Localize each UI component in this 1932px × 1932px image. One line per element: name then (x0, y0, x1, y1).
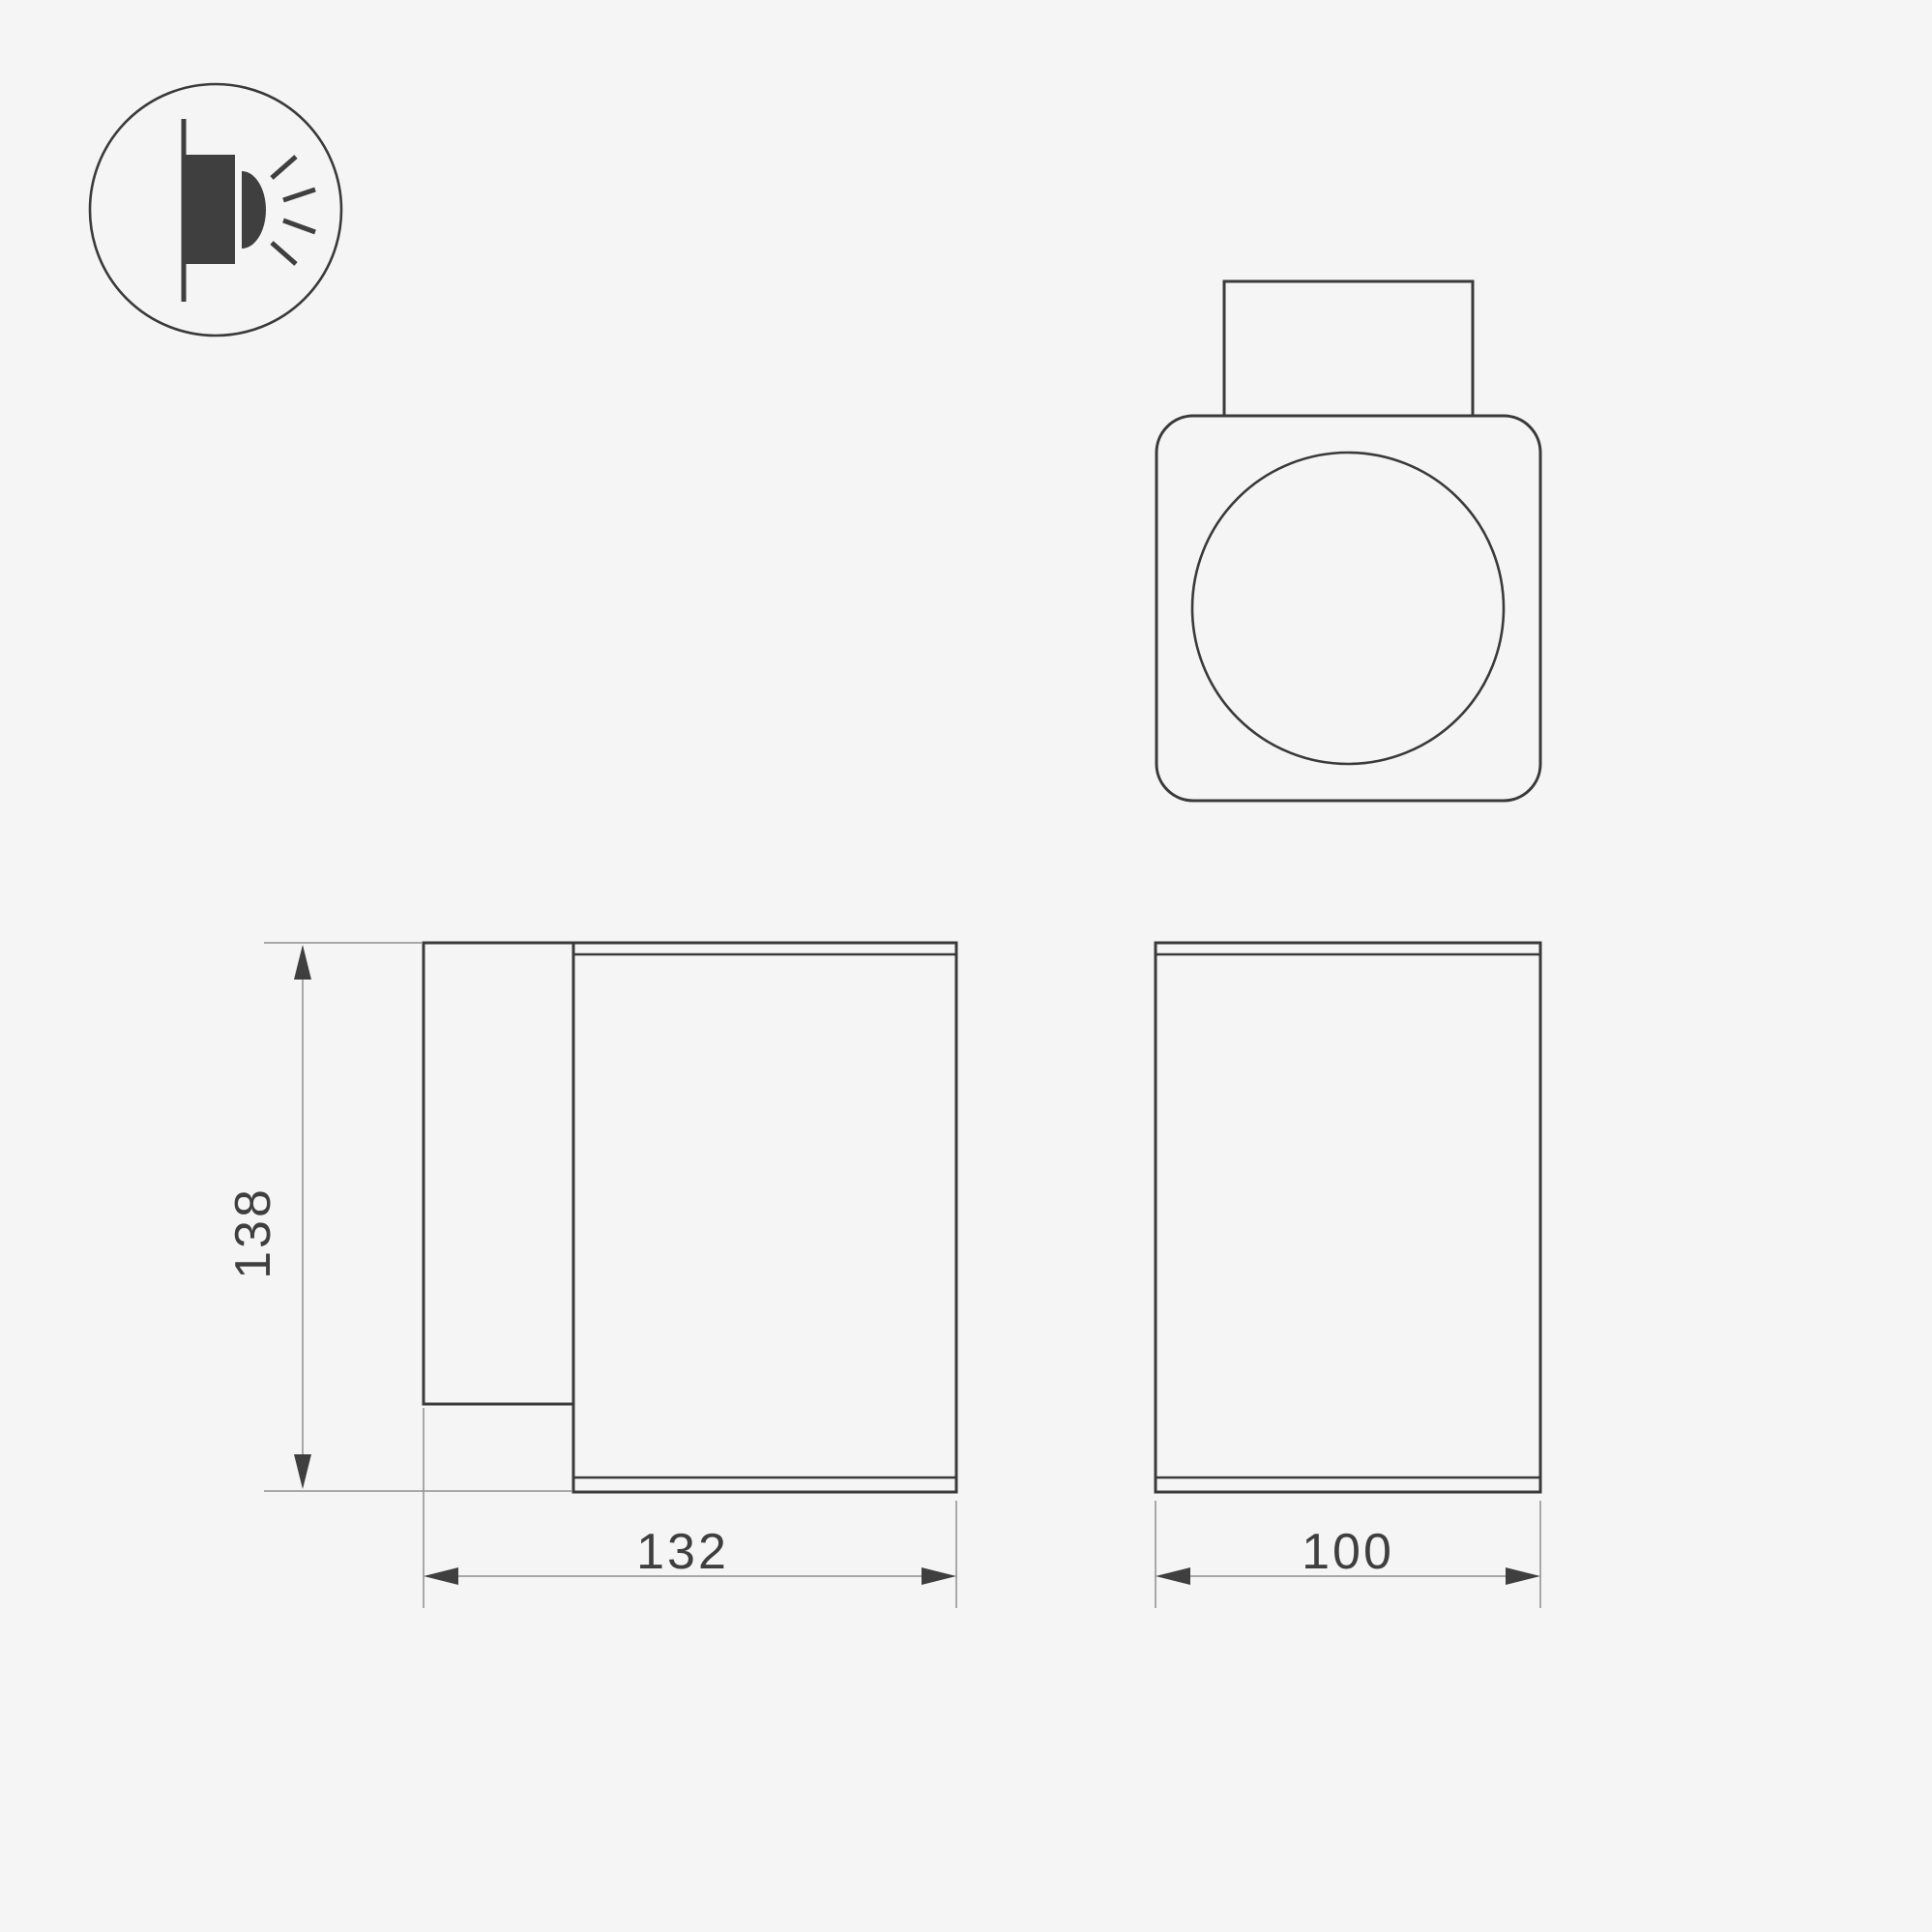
depth-dimension-label: 132 (636, 1524, 729, 1580)
dimension-height: 138 (225, 943, 571, 1491)
technical-drawing: 138 132 100 (0, 0, 1932, 1932)
top-view-housing (1156, 416, 1540, 801)
side-view (424, 943, 956, 1492)
width-arrow-left (1156, 1567, 1190, 1585)
front-view (1156, 943, 1540, 1492)
dimension-depth: 132 (424, 1408, 956, 1608)
width-arrow-right (1506, 1567, 1540, 1585)
wall-light-side-emission-icon (90, 84, 341, 336)
light-rays-icon (272, 157, 315, 264)
top-view (1156, 281, 1540, 801)
drawing-canvas: 138 132 100 (0, 0, 1932, 1932)
height-arrow-down (294, 1454, 311, 1489)
lamp-body-icon (184, 155, 235, 264)
front-view-body (1156, 943, 1540, 1492)
side-view-wall-bracket (424, 943, 573, 1404)
top-view-diffuser-circle (1192, 453, 1504, 764)
top-view-mount-box (1224, 281, 1473, 416)
height-arrow-up (294, 945, 311, 980)
width-dimension-label: 100 (1302, 1524, 1394, 1580)
side-view-body (573, 943, 956, 1492)
height-dimension-label: 138 (225, 1186, 281, 1279)
dimension-width: 100 (1156, 1501, 1540, 1608)
lamp-lens-icon (242, 171, 266, 249)
depth-arrow-right (922, 1567, 956, 1585)
depth-arrow-left (424, 1567, 458, 1585)
